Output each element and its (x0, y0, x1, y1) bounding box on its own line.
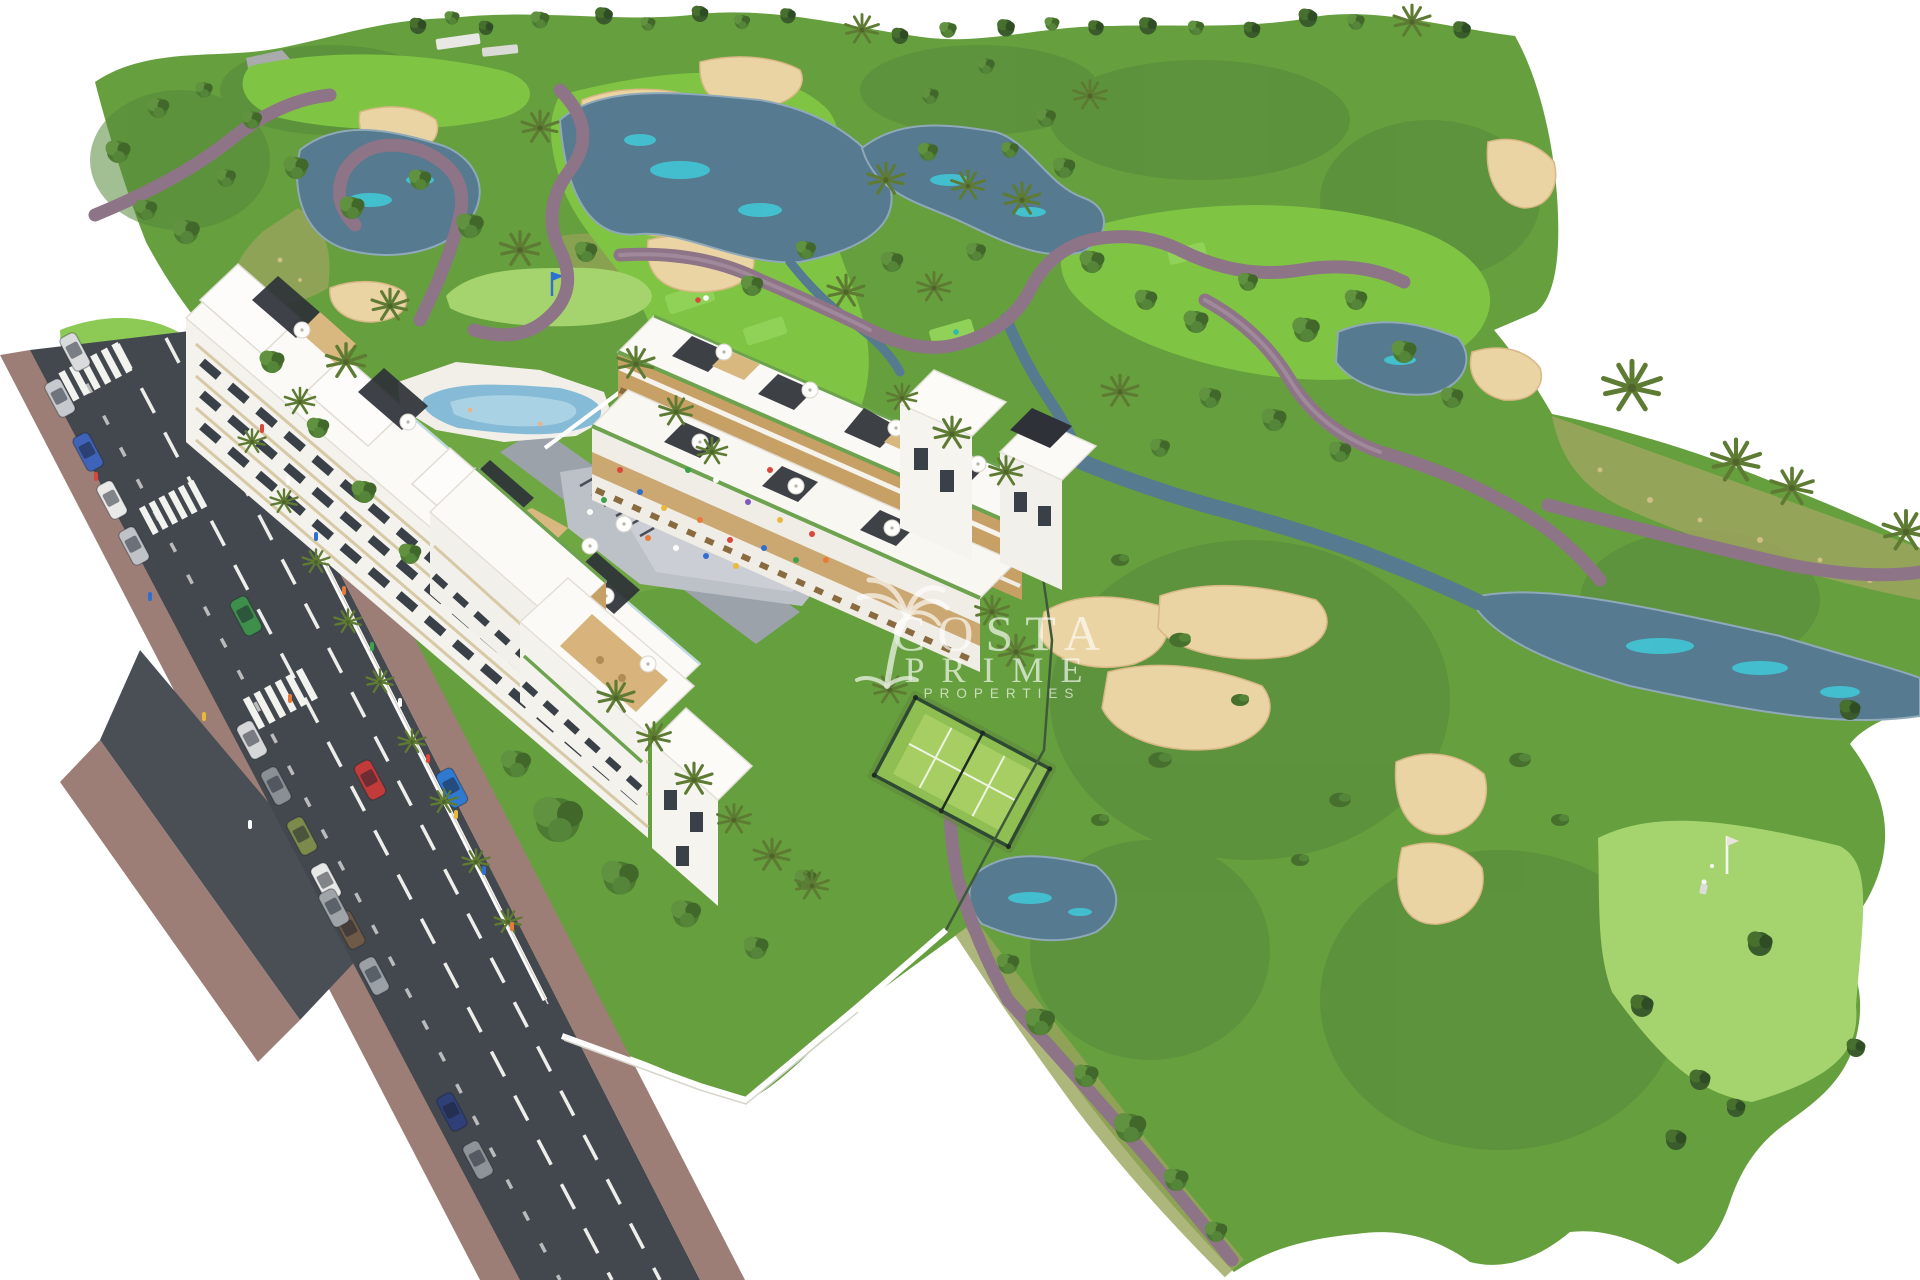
render-canvas: COSTA PRIME PROPERTIES (0, 0, 1920, 1280)
watermark-line2: PRIME (904, 650, 1099, 690)
watermark-line3: PROPERTIES (924, 686, 1081, 701)
property-aerial-render: COSTA PRIME PROPERTIES (0, 0, 1920, 1280)
